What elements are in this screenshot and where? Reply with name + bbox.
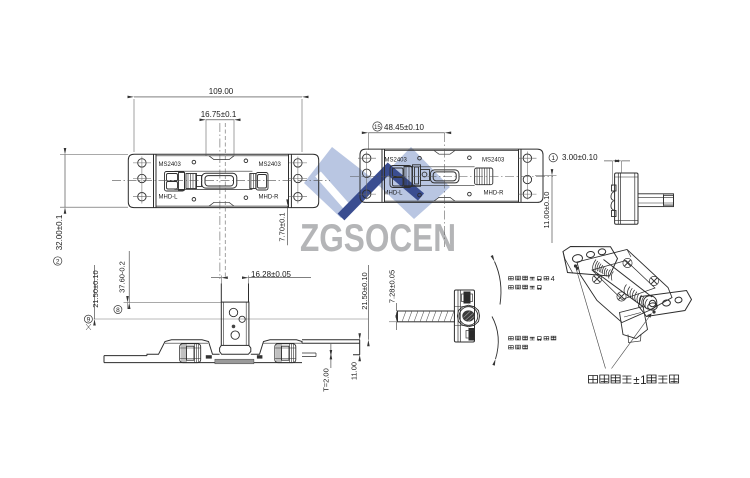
svg-text:4: 4 bbox=[551, 274, 555, 283]
svg-text:9: 9 bbox=[87, 317, 91, 324]
svg-text:1: 1 bbox=[640, 375, 646, 387]
svg-text:3.00±0.10: 3.00±0.10 bbox=[562, 153, 598, 162]
svg-text:11.00±0.10: 11.00±0.10 bbox=[542, 192, 551, 229]
svg-text:MS2403: MS2403 bbox=[385, 158, 408, 164]
svg-text:MS2403: MS2403 bbox=[259, 162, 282, 168]
svg-text:7.70±0.1: 7.70±0.1 bbox=[278, 212, 287, 241]
svg-text:11.00: 11.00 bbox=[350, 362, 359, 380]
svg-text:15: 15 bbox=[374, 124, 381, 131]
svg-text:MHD-R: MHD-R bbox=[484, 191, 505, 197]
svg-text:21.50±0.10: 21.50±0.10 bbox=[91, 270, 100, 307]
svg-text:7.28±0.05: 7.28±0.05 bbox=[388, 270, 397, 303]
svg-text:37.60-0.2: 37.60-0.2 bbox=[118, 261, 127, 293]
svg-text:21.50±0.10: 21.50±0.10 bbox=[360, 272, 369, 309]
svg-text:MS2403: MS2403 bbox=[482, 158, 505, 164]
svg-text:1: 1 bbox=[551, 155, 555, 162]
svg-text:ZGSOCEN: ZGSOCEN bbox=[300, 217, 456, 260]
svg-text:MHD-R: MHD-R bbox=[259, 195, 280, 201]
svg-text:48.45±0.10: 48.45±0.10 bbox=[384, 123, 425, 132]
svg-text:±: ± bbox=[633, 375, 639, 387]
svg-text:2: 2 bbox=[56, 258, 60, 265]
svg-text:16.75±0.1: 16.75±0.1 bbox=[201, 110, 237, 119]
svg-text:109.00: 109.00 bbox=[209, 87, 234, 96]
svg-text:T=2.00: T=2.00 bbox=[322, 368, 331, 392]
svg-text:8: 8 bbox=[116, 307, 120, 314]
svg-text:MHD-L: MHD-L bbox=[384, 191, 404, 197]
svg-text:32.00±0.1: 32.00±0.1 bbox=[55, 214, 64, 250]
svg-text:MS2403: MS2403 bbox=[159, 162, 182, 168]
svg-text:MHD-L: MHD-L bbox=[159, 195, 179, 201]
